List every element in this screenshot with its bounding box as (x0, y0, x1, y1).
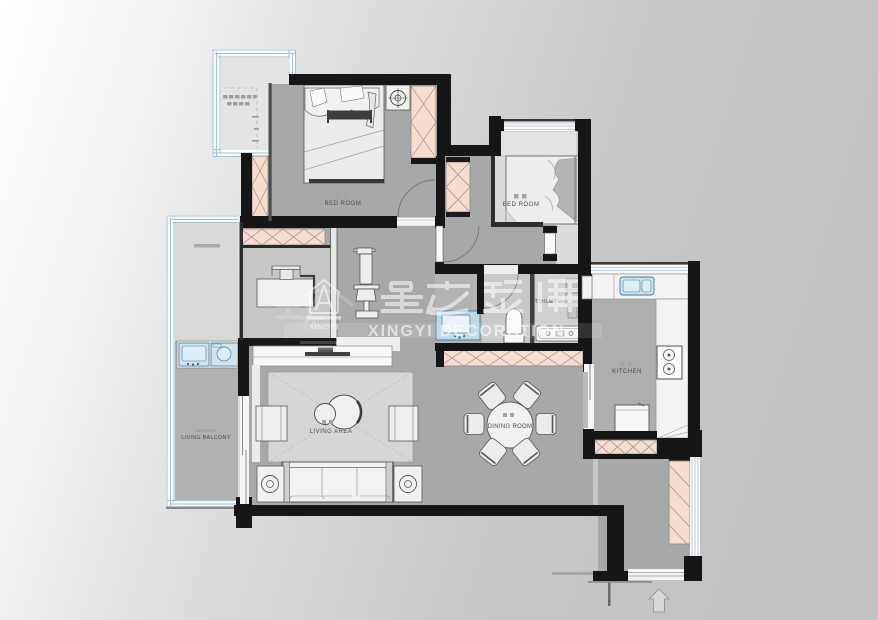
svg-text:XINGYI DECORATION: XINGYI DECORATION (368, 323, 565, 340)
svg-text:LIVING AREA: LIVING AREA (310, 429, 353, 435)
svg-text:BED ROOM: BED ROOM (325, 201, 362, 207)
svg-text:DINING ROOM: DINING ROOM (488, 424, 533, 430)
svg-text:LIVING BALCONY: LIVING BALCONY (181, 435, 230, 441)
svg-text:BED ROOM: BED ROOM (503, 202, 540, 208)
svg-text:KITCHEN: KITCHEN (612, 369, 642, 375)
